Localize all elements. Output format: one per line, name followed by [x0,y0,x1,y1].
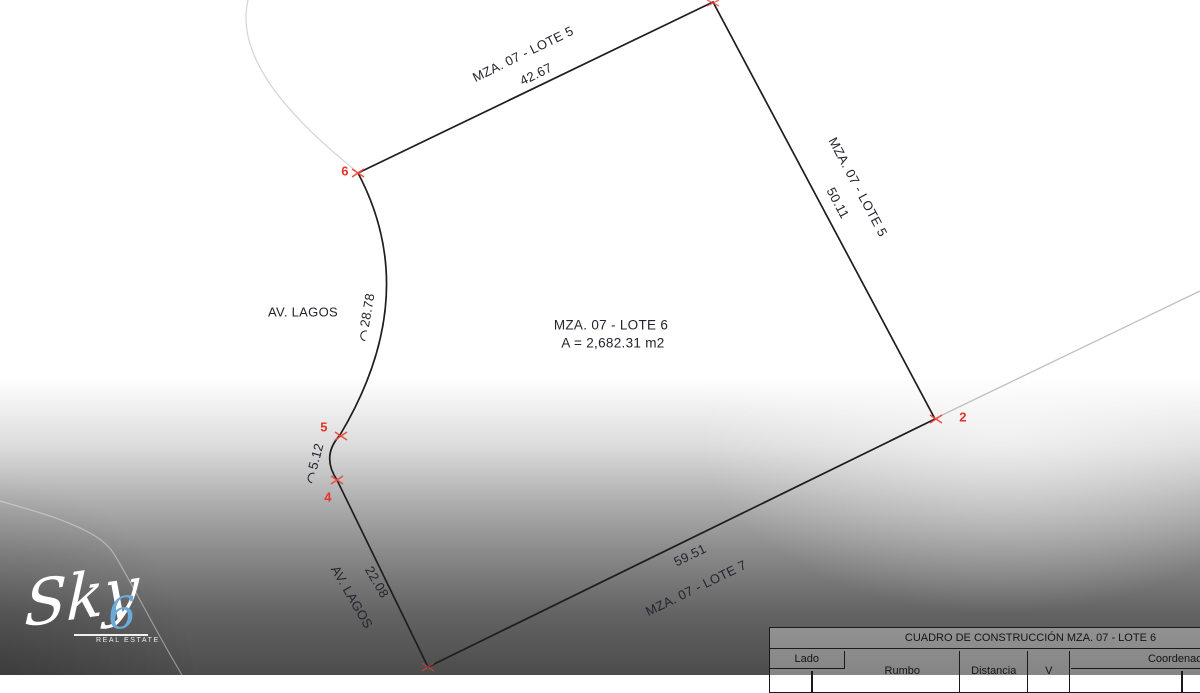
lot-title: MZA. 07 - LOTE 6 [554,318,668,333]
arc-symbol-icon [306,471,315,483]
vertex-number-2: 2 [959,410,967,425]
column-header-rumbo: Rumbo [846,651,960,692]
column-header-v-text: V [1045,665,1052,677]
street-name-upper-text: AV. LAGOS [268,305,338,320]
column-header-v: V [1029,651,1070,692]
vertex-number-6: 6 [341,164,349,179]
construction-table: CUADRO DE CONSTRUCCIÓN MZA. 07 - LOTE 6 … [769,627,1200,693]
column-header-distancia: Distancia [961,651,1028,692]
lot-boundary-path [330,2,935,667]
column-header-coordenadas-text: Coordenadas [1148,653,1200,665]
vertex-marker-6 [352,169,364,177]
vertex-number-5: 5 [320,420,328,435]
column-header-lado-text: Lado [795,653,819,665]
lot-area-text: A = 2,682.31 m2 [561,336,664,351]
arc-symbol-icon [359,329,367,341]
lot-area: A = 2,682.31 m2 [561,336,664,351]
lot-title-text: MZA. 07 - LOTE 6 [554,318,668,333]
lado-subcolumn-divider [811,671,813,692]
vertex-marker-bottom-corner [422,663,434,671]
column-header-distancia-text: Distancia [971,665,1016,677]
logo-tagline-text: REAL ESTATE [96,637,160,644]
vertex-number-2-text: 2 [959,410,967,425]
logo-underline [74,634,148,636]
vertex-marker-4 [331,476,343,484]
vertex-marker-top-corner [707,0,719,6]
vertex-marker-2 [930,415,942,423]
construction-table-title-text: CUADRO DE CONSTRUCCIÓN MZA. 07 - LOTE 6 [905,632,1156,644]
column-header-lado: Lado [770,651,845,670]
column-header-rumbo-text: Rumbo [885,665,920,677]
coordenadas-subcolumn-divider [1181,671,1183,692]
vertex-number-6-text: 6 [341,164,349,179]
vertex-number-5-text: 5 [320,420,328,435]
street-faint-curve-top [246,0,356,171]
column-header-coordenadas: Coordenadas [1071,651,1200,670]
survey-plan-page: { "drawing": { "lot_title": "MZA. 07 - L… [0,0,1200,675]
logo-number-text: 6 [106,591,137,637]
brand-logo: Sky 6 REAL ESTATE [16,570,176,670]
street-name-upper: AV. LAGOS [268,305,338,320]
vertex-number-4: 4 [324,490,332,505]
vertex-number-4-text: 4 [324,490,332,505]
adjacent-boundary-faint-line [936,291,1200,418]
construction-table-title: CUADRO DE CONSTRUCCIÓN MZA. 07 - LOTE 6 [770,628,1200,649]
